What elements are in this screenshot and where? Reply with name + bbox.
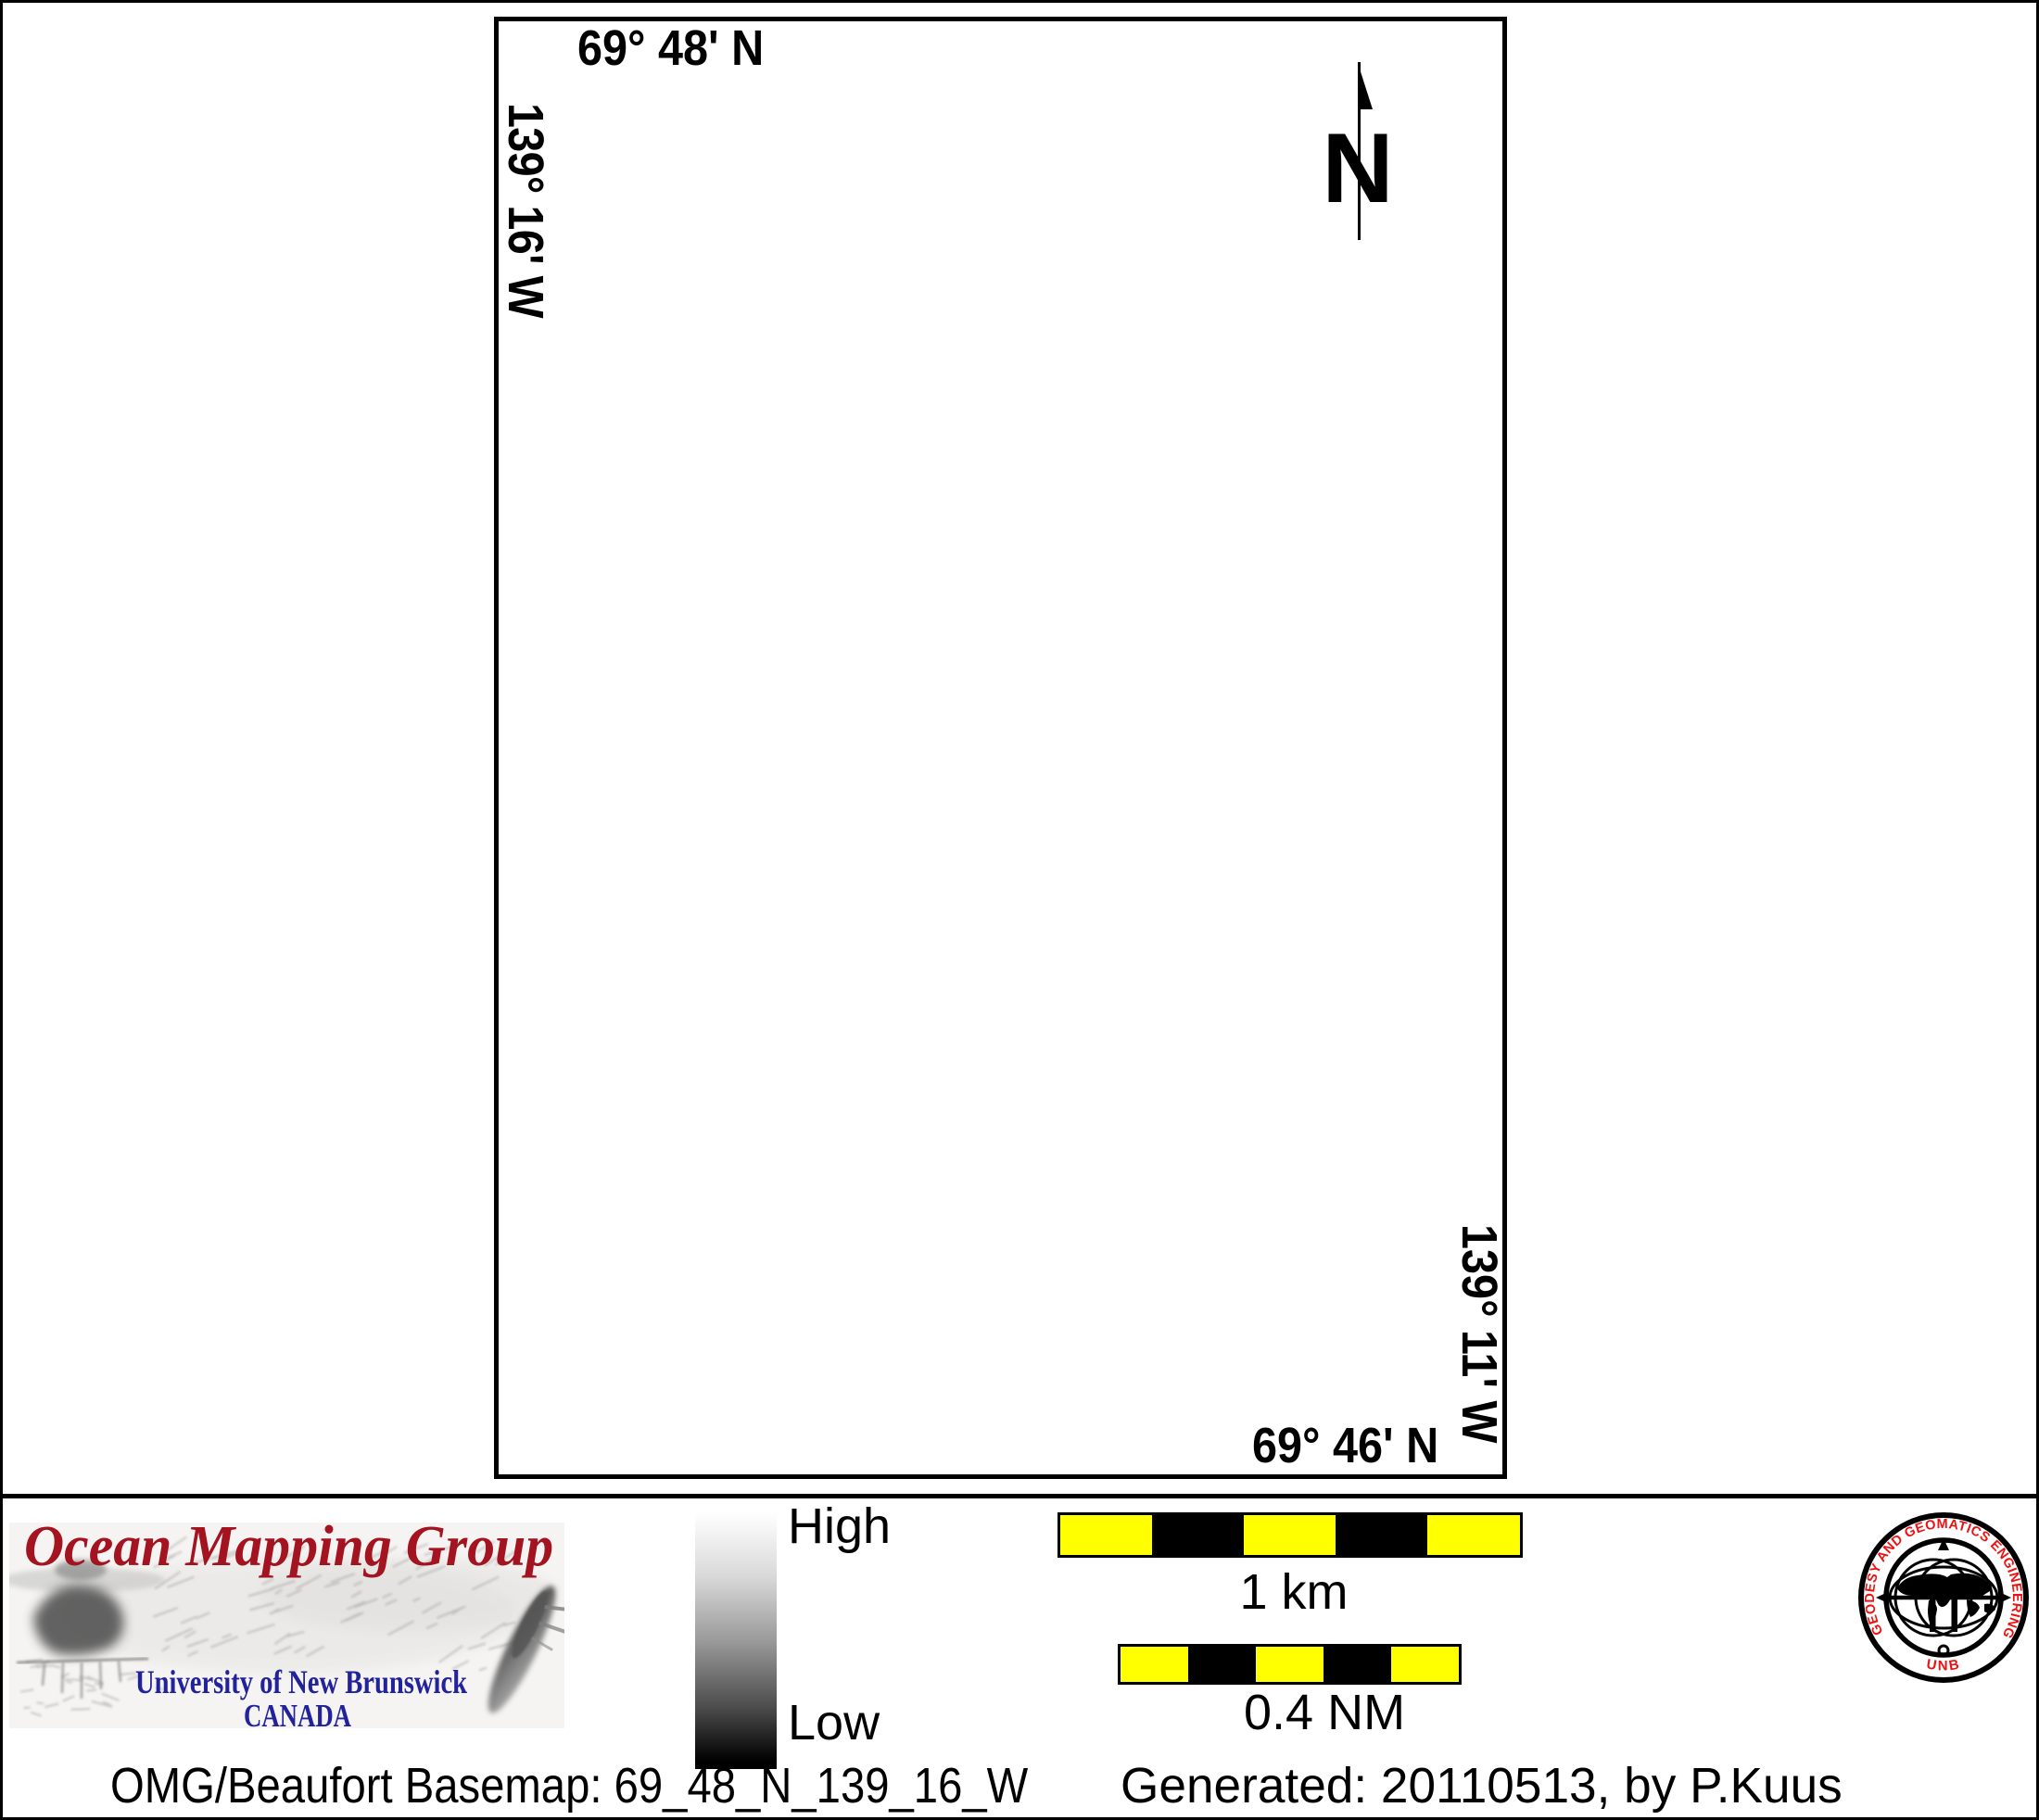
svg-text:N: N [1322,112,1393,223]
svg-text:UNB: UNB [1925,1656,1962,1674]
